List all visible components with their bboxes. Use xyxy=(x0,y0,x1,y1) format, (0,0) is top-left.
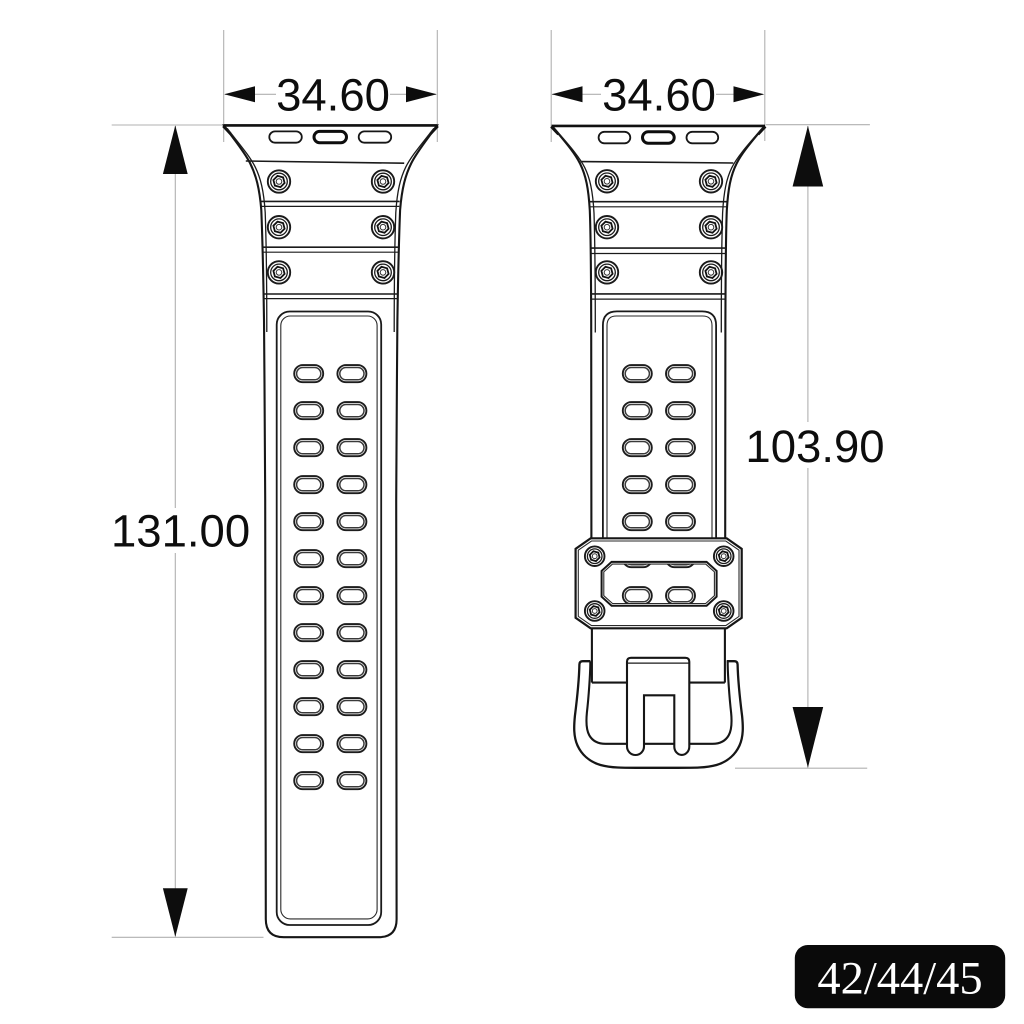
svg-text:34.60: 34.60 xyxy=(602,70,716,121)
svg-text:42/44/45: 42/44/45 xyxy=(817,954,982,1005)
svg-text:34.60: 34.60 xyxy=(276,70,390,121)
svg-text:103.90: 103.90 xyxy=(745,421,884,472)
svg-text:131.00: 131.00 xyxy=(111,506,250,557)
